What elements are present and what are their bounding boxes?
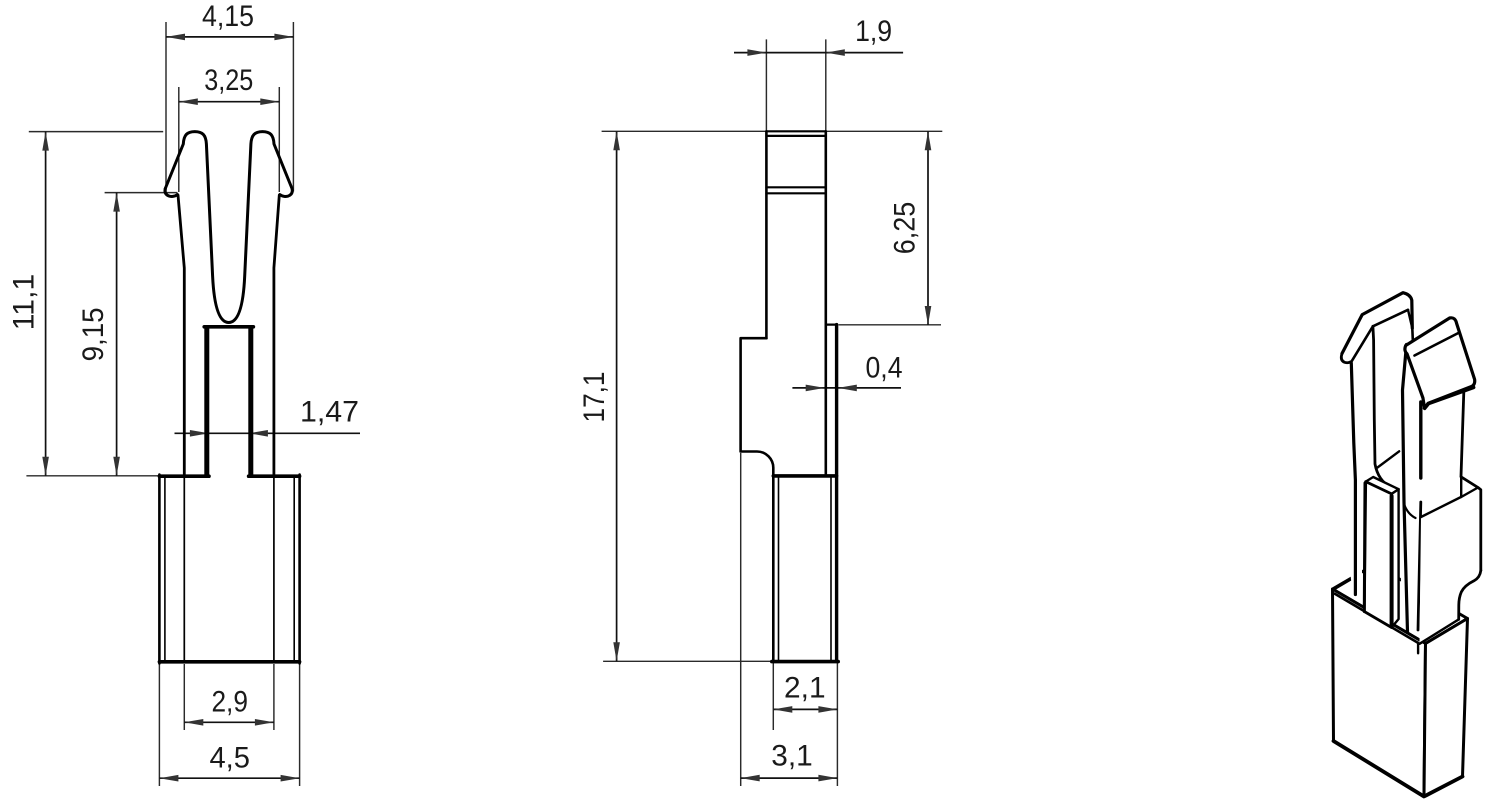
svg-text:17,1: 17,1 xyxy=(578,372,611,423)
svg-text:4,15: 4,15 xyxy=(202,0,254,33)
svg-text:3,1: 3,1 xyxy=(771,740,813,773)
svg-text:9,15: 9,15 xyxy=(77,307,110,361)
svg-text:4,5: 4,5 xyxy=(209,741,250,774)
svg-text:11,1: 11,1 xyxy=(8,274,41,331)
svg-text:2,1: 2,1 xyxy=(784,671,826,704)
svg-text:6,25: 6,25 xyxy=(889,202,922,255)
svg-text:0,4: 0,4 xyxy=(866,352,903,385)
svg-text:3,25: 3,25 xyxy=(204,64,253,97)
svg-text:1,47: 1,47 xyxy=(300,395,359,428)
svg-text:2,9: 2,9 xyxy=(211,686,248,719)
svg-text:1,9: 1,9 xyxy=(855,15,892,48)
